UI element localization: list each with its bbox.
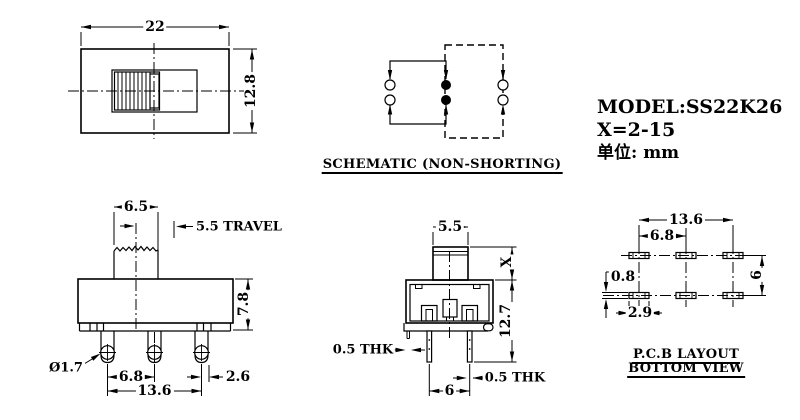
side-plate-thickness-dim: 0.5 THK xyxy=(331,344,395,357)
side-pin-pitch-dim: 6 xyxy=(443,384,457,398)
pin-front xyxy=(427,331,432,362)
front-pin-pitch-dim: 6.8 xyxy=(117,370,145,384)
front-knob-width-dim: 6.5 xyxy=(122,200,150,214)
front-hole-diameter-dim: Ø1.7 xyxy=(47,362,85,375)
x-range: X=2-15 xyxy=(597,119,782,142)
cavity-notch-left xyxy=(416,285,423,289)
terminal-open-4 xyxy=(498,95,508,105)
switch-body-outline xyxy=(78,279,233,323)
terminal-open-3 xyxy=(498,80,508,90)
extension-lines xyxy=(81,32,257,133)
wire-arrowheads xyxy=(388,70,505,115)
dim-lines xyxy=(84,207,248,391)
pin-dimple xyxy=(469,348,471,350)
side-pin-thickness-dim: 0.5 THK xyxy=(483,372,547,385)
pin-dimple xyxy=(428,339,430,341)
contact-left xyxy=(422,306,438,322)
pcb-layout-view xyxy=(602,218,766,318)
front-pin-width-dim: 2.6 xyxy=(224,370,252,384)
terminal-open-1 xyxy=(385,80,395,90)
schematic-diagram xyxy=(385,45,508,138)
schematic-label: SCHEMATIC (NON-SHORTING) xyxy=(322,158,563,174)
cavity-notch-right xyxy=(474,285,481,289)
pcb-bottom-view-title: BOTTOM VIEW xyxy=(627,362,745,378)
moving-contact-dashed-box xyxy=(445,45,503,138)
pcb-span-dim: 13.6 xyxy=(667,213,705,227)
top-view-height-dim: 12.8 xyxy=(244,72,258,110)
side-knob-width-dim: 5.5 xyxy=(436,220,464,234)
pcb-pitch-dim: 6.8 xyxy=(648,229,676,243)
pin-hole-crosshairs xyxy=(99,344,210,361)
unit-note: 单位: mm xyxy=(597,142,782,165)
top-view xyxy=(68,25,257,139)
side-total-height-dim: 12.7 xyxy=(499,302,513,340)
dim-lines xyxy=(81,27,252,133)
contact-right xyxy=(462,306,478,322)
front-body-height-dim: 7.8 xyxy=(237,290,251,318)
terminal-common-1 xyxy=(441,80,451,90)
pcb-pad-height-dim: 0.8 xyxy=(609,270,637,284)
front-travel-dim: 5.5 TRAVEL xyxy=(194,221,284,234)
model-number: MODEL:SS22K26 xyxy=(597,96,782,119)
wire-bracket-top xyxy=(390,61,446,79)
front-pin-span-dim: 13.6 xyxy=(135,384,173,398)
terminal-open-2 xyxy=(385,95,395,105)
title-block: MODEL:SS22K26 X=2-15 单位: mm xyxy=(597,96,782,165)
pcb-pad-width-dim: 2.9 xyxy=(626,306,654,320)
knob-cap-lines xyxy=(433,252,468,256)
terminal-common-2 xyxy=(441,95,451,105)
dim-arrowheads xyxy=(604,218,764,315)
contact-right-slot xyxy=(467,310,474,322)
dim-arrowheads xyxy=(396,225,515,393)
wire-bracket-bottom xyxy=(390,105,446,124)
base-plate xyxy=(404,323,488,331)
side-knob-height-dim: X xyxy=(500,255,514,270)
top-view-width-dim: 22 xyxy=(143,20,166,34)
technical-drawing-sheet: 22 12.8 SCHEMATIC (NON-SHORTING) MODEL:S… xyxy=(0,0,800,420)
base-plate xyxy=(80,323,231,331)
bracket-tab-right xyxy=(484,324,494,331)
bracket-tab-left xyxy=(407,331,410,339)
pcb-row-gap-dim: 6 xyxy=(750,268,764,282)
pin-dimple xyxy=(428,348,430,350)
pin-dimple xyxy=(469,339,471,341)
pin-back xyxy=(467,331,472,362)
contact-left-slot xyxy=(426,310,433,322)
